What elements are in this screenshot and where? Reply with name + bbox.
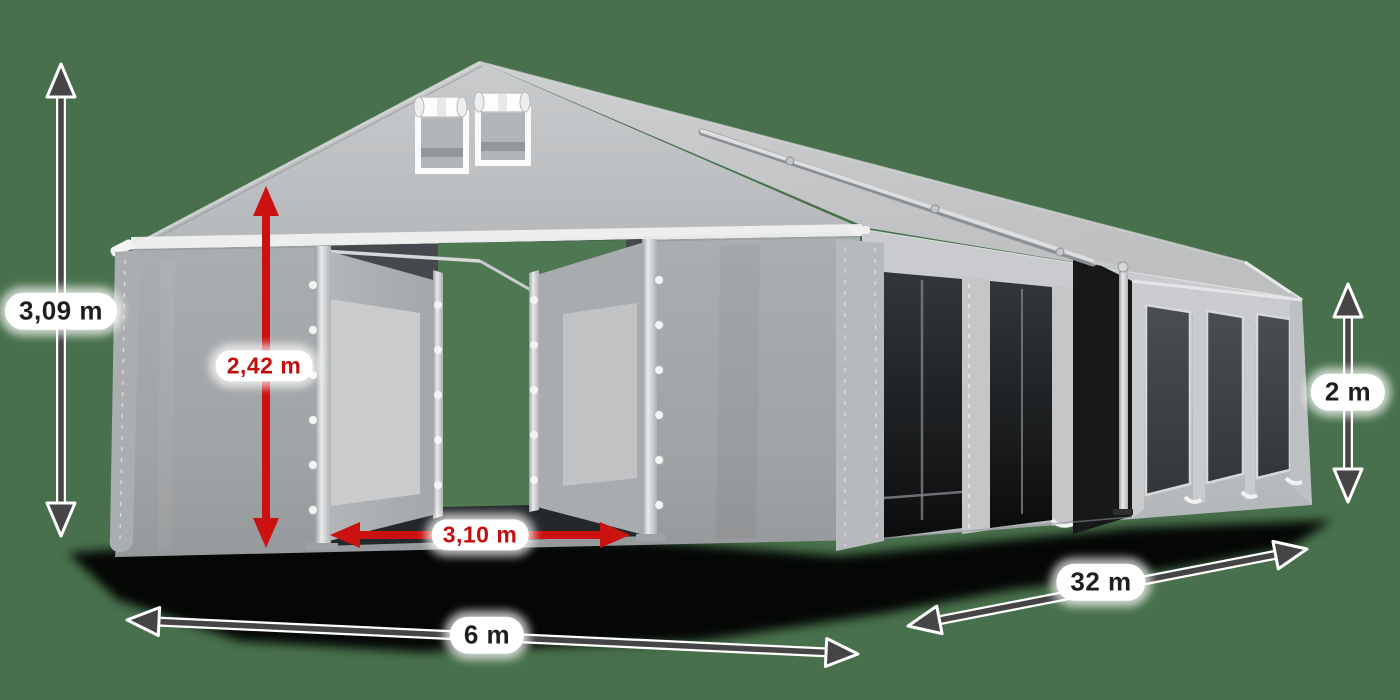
door-opening: [306, 239, 666, 550]
dimension-label-side-height: 2 m: [1311, 374, 1385, 411]
side-post-1: [962, 276, 990, 534]
gap-pole: [1119, 266, 1128, 514]
rear-window-1: [1146, 305, 1190, 495]
door-left-window: [330, 299, 420, 506]
product-illustration: 3,09 m 2,42 m 3,10 m 6 m 32 m 2 m: [0, 0, 1400, 700]
dimension-label-total-height: 3,09 m: [5, 293, 117, 330]
tent-illustration: [0, 0, 1400, 700]
door-left-panel: [321, 249, 443, 543]
rear-window-2: [1207, 311, 1243, 483]
rear-window-3: [1257, 314, 1290, 478]
dimension-label-door-width: 3,10 m: [432, 519, 529, 550]
rear-post-2: [1245, 297, 1255, 500]
side-post-2: [1052, 285, 1073, 526]
dimension-label-door-height: 2,42 m: [216, 350, 313, 381]
door-right-window: [563, 303, 637, 486]
rear-post-1: [1193, 295, 1205, 505]
dimension-label-front-width: 6 m: [450, 617, 524, 654]
gable-vent-left: [414, 97, 467, 171]
gable-vent-right: [474, 92, 530, 163]
front-right-corner-sleeve: [836, 239, 884, 551]
door-right-panel: [529, 241, 648, 536]
dimension-label-length: 32 m: [1056, 564, 1145, 601]
